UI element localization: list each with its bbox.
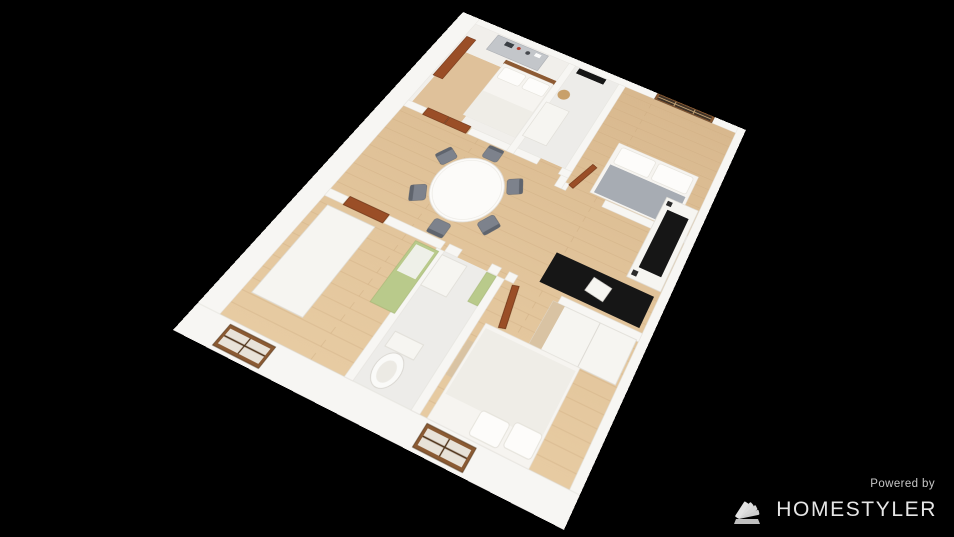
- homestyler-wordmark: HOMESTYLER: [776, 498, 937, 522]
- homestyler-logo-icon: [733, 495, 767, 525]
- floor-plan: [173, 12, 746, 530]
- floorplan-render-canvas: Powered by HOMESTYLER: [0, 0, 954, 537]
- dining-chair: [408, 184, 427, 201]
- powered-by-label: Powered by: [733, 478, 935, 490]
- homestyler-watermark: Powered by HOMESTYLER: [733, 478, 937, 525]
- dining-chair: [507, 179, 523, 195]
